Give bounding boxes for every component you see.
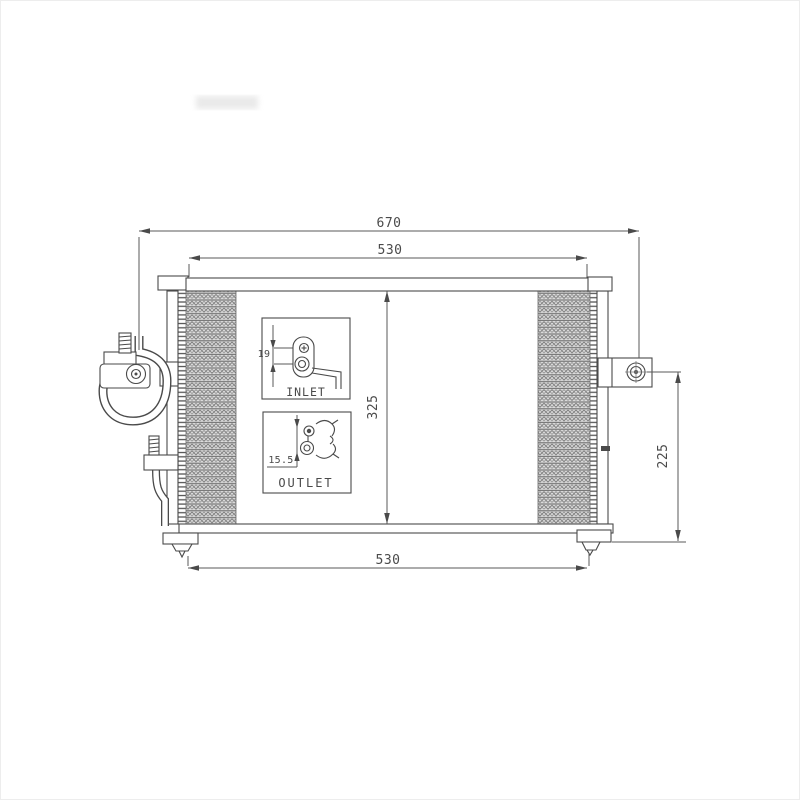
dim-text-bottom-width: 530 <box>376 553 401 568</box>
dim-top-width: 530 <box>189 243 587 277</box>
top-bar-left-cap <box>158 276 188 290</box>
right-plate-joint-tick <box>601 446 610 451</box>
top-bar-right-cap <box>587 277 612 291</box>
dim-text-overall-width: 670 <box>377 216 402 231</box>
right-mount-bracket <box>598 358 652 387</box>
right-foot-grommet <box>582 542 600 550</box>
top-header-bar <box>186 278 588 291</box>
outlet-detail-inset: 15.5 OUTLET <box>263 412 351 493</box>
bottom-header-bar <box>179 524 613 533</box>
inlet-detail-inset: 19 INLET <box>258 318 350 399</box>
scan-artifact-smudge <box>196 96 258 109</box>
outlet-fitting-block <box>144 455 178 470</box>
left-foot-grommet <box>172 544 192 551</box>
dim-text-inlet-pipe: 19 <box>258 349 271 360</box>
inlet-label: INLET <box>286 385 326 399</box>
dim-text-bracket-height: 225 <box>656 444 671 469</box>
bracket-body <box>598 358 652 387</box>
dim-text-core-height: 325 <box>366 395 381 420</box>
technical-drawing-canvas: 670 530 325 225 530 <box>0 0 800 800</box>
right-foot-bracket <box>577 530 611 542</box>
dim-bottom-width: 530 <box>188 553 589 571</box>
condenser-core <box>158 276 613 533</box>
left-side-plate <box>167 291 178 524</box>
left-foot-bracket <box>163 533 198 544</box>
dim-text-top-width: 530 <box>378 243 403 258</box>
left-foot-pin <box>179 551 185 557</box>
dim-bracket-height: 225 <box>612 372 686 542</box>
outlet-pipe-port <box>301 442 314 455</box>
right-side-plate <box>597 291 608 524</box>
dim-text-outlet-pipe: 15.5 <box>268 455 293 466</box>
left-fin-pack <box>186 291 236 524</box>
right-fin-pack <box>538 291 590 524</box>
condenser-drawing-svg: 670 530 325 225 530 <box>0 0 800 800</box>
outlet-label: OUTLET <box>278 476 333 490</box>
right-foot-pin <box>587 550 593 555</box>
dim-core-height: 325 <box>366 291 390 524</box>
